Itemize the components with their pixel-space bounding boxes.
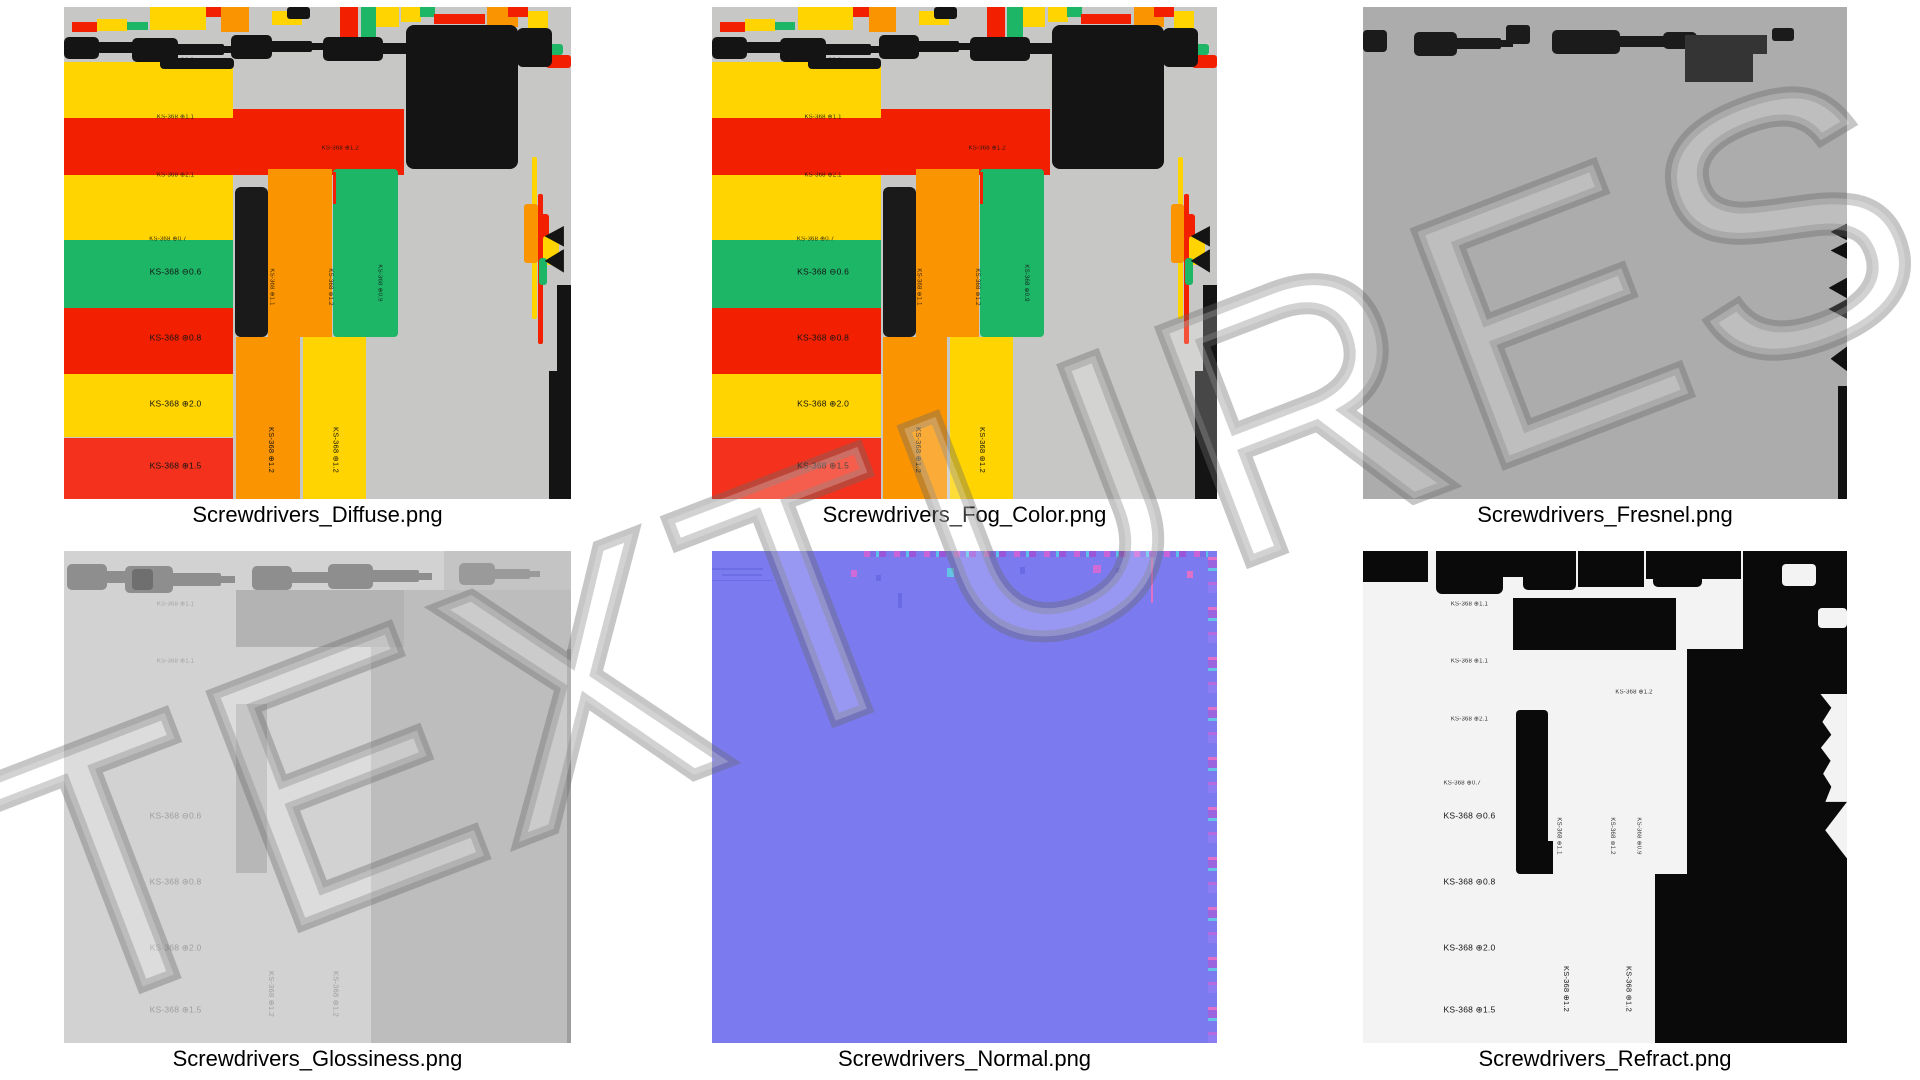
caption-refract: Screwdrivers_Refract.png	[1363, 1046, 1847, 1072]
silhouette-tip	[132, 569, 152, 591]
part-label-vertical: KS-368 ⊕0.9	[1635, 818, 1642, 855]
glitch-line	[712, 580, 773, 582]
black-region	[1578, 551, 1643, 587]
screwdriver-silhouette	[231, 35, 272, 60]
part-label: KS-368 ⊕1.1	[1451, 657, 1488, 664]
black-region	[1523, 577, 1576, 591]
confetti-swatch	[376, 7, 399, 27]
part-label: KS-368 ⊕2.0	[150, 942, 202, 953]
edge-strip-black	[1203, 285, 1217, 374]
confetti-swatch	[869, 7, 897, 32]
edge-blob-orange	[524, 204, 537, 263]
black-region	[1363, 551, 1428, 582]
screwdriver-silhouette	[64, 37, 99, 60]
color-band-yellow	[64, 62, 233, 118]
part-label: KS-368 ⊖0.6	[150, 811, 202, 822]
confetti-swatch	[745, 19, 775, 31]
color-band-yellow	[712, 62, 881, 118]
part-label: KS-368 ⊕2.0	[150, 398, 202, 409]
confetti-swatch	[1067, 7, 1082, 17]
confetti-swatch	[798, 7, 854, 30]
confetti-swatch	[434, 14, 485, 24]
confetti-swatch	[1048, 7, 1068, 22]
edge-blob-green	[1185, 258, 1193, 285]
green-rect	[333, 169, 398, 337]
part-label-vertical: KS-368 ⊕1.2	[914, 427, 923, 473]
part-label: KS-368 ⊕2.0	[797, 398, 849, 409]
part-label: KS-368 ⊕1.2	[322, 144, 359, 151]
part-label-vertical: KS-368 ⊛1.2	[327, 269, 334, 306]
black-bar-bump	[1540, 841, 1553, 873]
part-label-vertical: KS-368 ⊛1.2	[974, 269, 981, 306]
confetti-swatch	[401, 7, 421, 22]
part-label: KS-368 ⊕1.1	[157, 600, 194, 607]
orange-column	[916, 169, 979, 337]
part-label-vertical: KS-368 ⊕1.2	[267, 427, 276, 473]
part-label: KS-368 ⊖0.6	[797, 267, 849, 278]
part-label: KS-368 ⊕2.1	[157, 171, 194, 178]
part-label-vertical: KS-368 ⊕1.1	[916, 269, 923, 306]
screwdriver-silhouette	[879, 35, 919, 60]
glitch-bit	[898, 593, 902, 608]
part-label: KS-368 ⊛0.8	[150, 332, 202, 343]
part-label: KS-368 ⊕0.7	[797, 236, 834, 243]
black-bar	[883, 187, 916, 338]
edge-strip-black	[1195, 371, 1217, 499]
normal-edge-noise	[1208, 551, 1217, 1043]
screwdriver-silhouette	[323, 37, 384, 62]
glitch-line	[722, 574, 762, 576]
texture-preview-normal	[712, 551, 1217, 1043]
part-label: KS-368 ⊕1.1	[157, 56, 194, 63]
color-band-yellow	[712, 175, 881, 240]
normal-top-noise	[864, 551, 1218, 557]
silhouette-overlap	[287, 7, 310, 19]
screwdriver-silhouette	[1363, 30, 1387, 53]
part-label: KS-368 ⊕1.1	[1451, 600, 1488, 607]
caption-fog-color: Screwdrivers_Fog_Color.png	[712, 502, 1217, 528]
dark-region	[1753, 35, 1768, 55]
black-region	[1503, 551, 1576, 577]
silhouette-overlap	[934, 7, 957, 19]
black-region-large	[1687, 649, 1847, 1043]
part-label-vertical: KS-368 ⊛1.2	[1625, 966, 1634, 1012]
part-label: KS-368 ⊕0.7	[149, 236, 186, 243]
part-label: KS-368 ⊕1.5	[150, 460, 202, 471]
glitch-bit	[1151, 558, 1152, 602]
confetti-swatch	[97, 19, 127, 31]
part-label: KS-368 ⊕1.1	[157, 113, 194, 120]
glitch-bit	[1116, 568, 1121, 573]
caption-fresnel: Screwdrivers_Fresnel.png	[1363, 502, 1847, 528]
glitch-line	[712, 568, 763, 570]
screwdriver-silhouette	[1552, 30, 1620, 55]
color-band-red	[64, 118, 233, 175]
confetti-swatch	[72, 22, 97, 32]
silhouette-fragment	[1772, 28, 1794, 42]
black-region	[1436, 551, 1504, 594]
caption-diffuse: Screwdrivers_Diffuse.png	[64, 502, 571, 528]
screwdriver-silhouette	[1091, 37, 1136, 60]
edge-strip	[567, 649, 571, 1043]
part-label-vertical: KS-368 ⊕0.9	[1023, 264, 1030, 301]
tile-shapes-fog: KS-368 ⊕1.1 KS-368 ⊕1.1 KS-368 ⊕2.1 KS-3…	[712, 7, 1217, 499]
screwdriver-silhouette	[1506, 25, 1530, 45]
glitch-bit	[1187, 571, 1193, 578]
part-label: KS-368 ⊖0.6	[1444, 811, 1496, 822]
confetti-swatch	[127, 22, 147, 30]
tile-shapes-diffuse: KS-368 ⊕1.1 KS-368 ⊕1.1 KS-368 ⊕2.1 KS-3…	[64, 7, 571, 499]
part-label: KS-368 ⊛0.8	[150, 876, 202, 887]
edge-triangle	[1831, 242, 1847, 259]
orange-column	[236, 337, 300, 499]
gloss-dark-bar	[236, 704, 266, 874]
screwdriver-silhouette	[712, 37, 747, 60]
confetti-swatch	[150, 7, 206, 30]
screwdriver-silhouette	[444, 37, 490, 60]
confetti-swatch	[361, 7, 376, 37]
glitch-bit	[1020, 567, 1025, 574]
texture-preview-fresnel	[1363, 7, 1847, 499]
confetti-swatch	[775, 22, 795, 30]
yellow-column	[950, 337, 1013, 499]
confetti-swatch	[508, 7, 528, 17]
red-sliver	[333, 172, 337, 203]
texture-preview-diffuse: KS-368 ⊕1.1 KS-368 ⊕1.1 KS-368 ⊕2.1 KS-3…	[64, 7, 571, 499]
screwdriver-silhouette	[970, 37, 1031, 62]
part-label: KS-368 ⊕2.1	[804, 171, 841, 178]
part-label: KS-368 ⊕1.2	[1615, 688, 1652, 695]
part-label: KS-368 ⊛0.8	[1444, 876, 1496, 887]
part-label: KS-368 ⊕2.0	[1444, 942, 1496, 953]
dark-region	[1685, 35, 1753, 82]
white-notch	[1818, 608, 1847, 628]
white-notch	[1782, 564, 1816, 587]
part-label: KS-368 ⊛0.8	[797, 332, 849, 343]
black-region	[1646, 551, 1740, 579]
part-label: KS-368 ⊕1.5	[150, 1004, 202, 1015]
confetti-swatch	[720, 22, 745, 32]
part-label: KS-368 ⊕1.1	[804, 56, 841, 63]
part-label: KS-368 ⊕1.1	[804, 113, 841, 120]
part-label-vertical: KS-368 ⊛1.2	[1609, 818, 1616, 855]
caption-normal: Screwdrivers_Normal.png	[712, 1046, 1217, 1072]
part-label-vertical: KS-368 ⊛1.2	[978, 427, 987, 473]
part-label-vertical: KS-368 ⊕1.1	[268, 269, 275, 306]
part-label: KS-368 ⊕1.5	[797, 460, 849, 471]
glitch-bit	[947, 568, 954, 577]
black-bar	[235, 187, 268, 338]
texture-preview-glossiness: KS-368 ⊕1.1 KS-368 ⊕1.1 KS-368 ⊖0.6 KS-3…	[64, 551, 571, 1043]
texture-preview-refract: KS-368 ⊕1.1 KS-368 ⊕1.1 KS-368 ⊕2.1 KS-3…	[1363, 551, 1847, 1043]
part-label: KS-368 ⊕2.1	[1451, 715, 1488, 722]
edge-triangle	[1829, 299, 1847, 319]
confetti-swatch	[1154, 7, 1174, 17]
confetti-swatch	[1023, 7, 1046, 27]
black-rect	[1513, 598, 1676, 650]
yellow-column	[303, 337, 366, 499]
part-label-vertical: KS-368 ⊕1.2	[267, 971, 276, 1017]
glitch-bit	[851, 570, 857, 577]
edge-triangle	[1831, 223, 1847, 240]
edge-strip-black	[549, 371, 571, 499]
part-label: KS-368 ⊕1.2	[969, 144, 1006, 151]
confetti-swatch	[420, 7, 435, 17]
caption-glossiness: Screwdrivers_Glossiness.png	[64, 1046, 571, 1072]
screwdriver-silhouette	[1414, 32, 1458, 57]
part-label-vertical: KS-368 ⊕0.9	[376, 264, 383, 301]
part-label-vertical: KS-368 ⊛1.2	[331, 971, 340, 1017]
edge-triangle	[1831, 346, 1847, 371]
orange-column	[883, 337, 947, 499]
color-band-red	[712, 118, 881, 175]
part-label: KS-368 ⊕1.5	[1444, 1004, 1496, 1015]
part-label-vertical: KS-368 ⊕1.1	[1556, 818, 1563, 855]
black-region	[1653, 579, 1701, 588]
screwdriver-silhouette	[252, 566, 293, 591]
confetti-swatch	[1081, 14, 1132, 24]
red-sliver	[980, 172, 984, 203]
color-band-red-wide	[881, 109, 1051, 175]
edge-strip-black	[557, 285, 571, 374]
part-label-vertical: KS-368 ⊛1.2	[331, 427, 340, 473]
edge-strip-black	[1838, 386, 1847, 499]
edge-triangle	[1829, 278, 1847, 299]
glitch-bit	[1093, 565, 1101, 573]
green-rect	[980, 169, 1045, 337]
black-region-large	[1655, 874, 1689, 1043]
gloss-dark-rect	[236, 590, 403, 647]
confetti-swatch	[221, 7, 249, 32]
edge-blob-orange	[1171, 204, 1184, 263]
texture-preview-sheet: KS-368 ⊕1.1 KS-368 ⊕1.1 KS-368 ⊕2.1 KS-3…	[0, 0, 1920, 1080]
color-band-red-wide	[233, 109, 403, 175]
screwdriver-silhouette	[459, 563, 494, 586]
edge-blob-green	[539, 258, 547, 285]
glitch-bit	[876, 575, 881, 581]
color-band-yellow	[64, 175, 233, 240]
screwdriver-silhouette	[67, 564, 108, 591]
part-label-vertical: KS-368 ⊕1.2	[1562, 966, 1571, 1012]
confetti-swatch	[1007, 7, 1022, 37]
texture-preview-fog-color: KS-368 ⊕1.1 KS-368 ⊕1.1 KS-368 ⊕2.1 KS-3…	[712, 7, 1217, 499]
screwdriver-silhouette	[328, 564, 374, 590]
orange-column	[268, 169, 331, 337]
part-label: KS-368 ⊖0.6	[150, 267, 202, 278]
part-label: KS-368 ⊕1.1	[157, 657, 194, 664]
gloss-dark-region	[371, 590, 571, 1043]
part-label: KS-368 ⊕0.7	[1444, 780, 1481, 787]
